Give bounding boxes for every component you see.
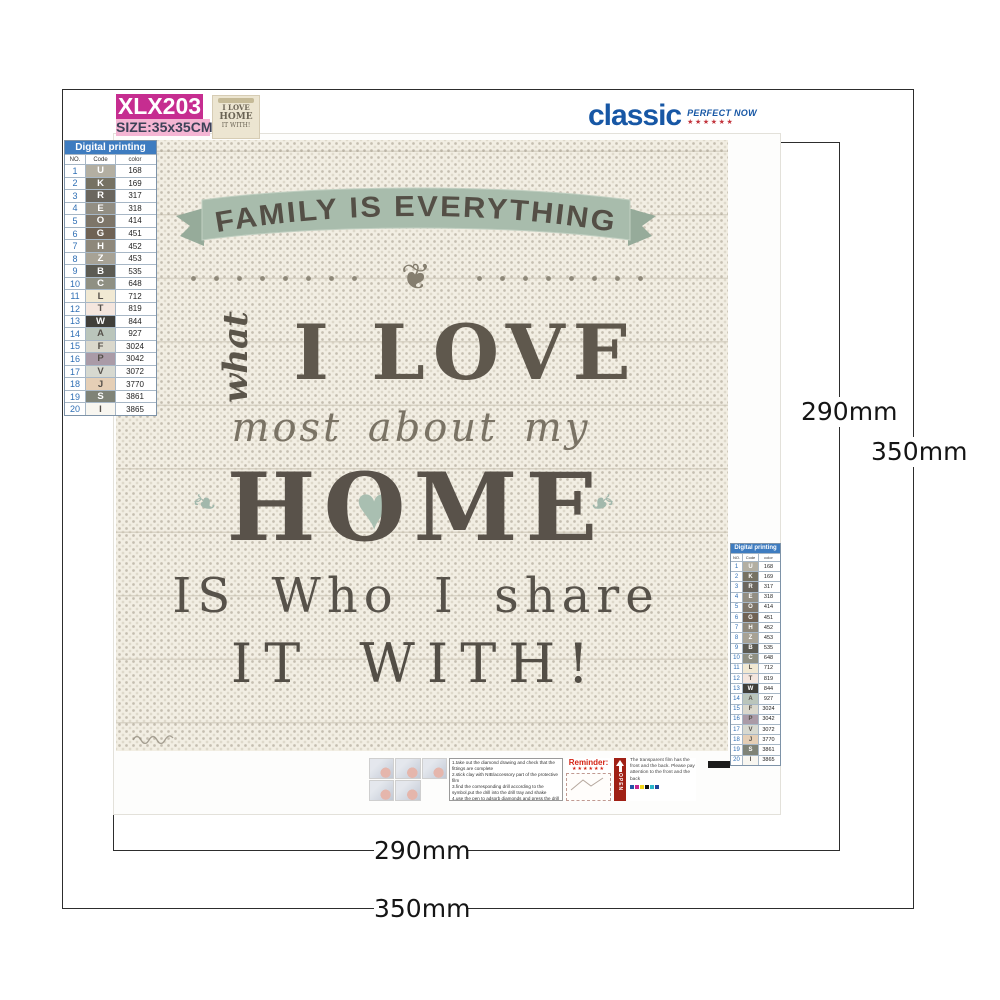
palette-color-number: 168 — [758, 562, 778, 571]
palette-row: 16P3042 — [731, 714, 780, 724]
palette-color-number: 3861 — [758, 745, 778, 754]
palette-color-number: 712 — [758, 664, 778, 673]
palette-no: 2 — [731, 572, 742, 581]
palette-no: 8 — [731, 633, 742, 642]
palette-row: 4E318 — [731, 592, 780, 602]
palette-color-number: 453 — [758, 633, 778, 642]
palette-no: 12 — [65, 303, 85, 315]
palette-code-swatch: Z — [742, 633, 758, 642]
palette-no: 11 — [731, 664, 742, 673]
palette-color-number: 535 — [115, 265, 154, 277]
palette-code-swatch: E — [85, 203, 115, 215]
palette-color-number: 927 — [115, 328, 154, 340]
palette-color-number: 3072 — [115, 366, 154, 378]
palette-code-swatch: Z — [85, 253, 115, 265]
palette-row: 4E318 — [65, 202, 156, 215]
palette-row: 10C648 — [65, 277, 156, 290]
palette-color-number: 3770 — [115, 378, 154, 390]
palette-code-swatch: F — [85, 341, 115, 353]
instruction-step: 4.use the pen to adsorb diamonds and pre… — [452, 796, 560, 801]
film-note-text: The transparent film has the front and t… — [630, 758, 695, 782]
palette-code-swatch: H — [742, 623, 758, 632]
palette-row: 13W844 — [731, 683, 780, 693]
cmyk-square — [655, 785, 659, 789]
palette-color-number: 414 — [115, 215, 154, 227]
palette-code-swatch: G — [742, 613, 758, 622]
palette-no: 16 — [731, 715, 742, 724]
palette-code-swatch: S — [85, 391, 115, 403]
step-image — [369, 758, 394, 779]
palette-color-number: 712 — [115, 290, 154, 302]
reminder-sketch — [566, 773, 611, 801]
thumbnail-line: IT WITH! — [213, 122, 259, 129]
palette-no: 1 — [65, 165, 85, 177]
palette-code-swatch: K — [742, 572, 758, 581]
dimension-label-design-width: 290mm — [374, 836, 466, 866]
palette-no: 3 — [731, 582, 742, 591]
brand-logo: classic PERFECT NOW ★★★★★★ — [588, 100, 757, 132]
palette-row: 3R317 — [65, 189, 156, 202]
palette-color-number: 168 — [115, 165, 154, 177]
palette-code-swatch: T — [742, 674, 758, 683]
palette-color-number: 3024 — [115, 341, 154, 353]
dimension-label-design-height: 290mm — [801, 397, 885, 427]
palette-color-number: 3865 — [758, 756, 778, 765]
palette-color-number: 452 — [758, 623, 778, 632]
palette-row: 5O414 — [65, 214, 156, 227]
palette-code-swatch: B — [85, 265, 115, 277]
palette-row: 6G451 — [65, 227, 156, 240]
palette-code-swatch: R — [85, 190, 115, 202]
palette-row: 1U168 — [65, 164, 156, 177]
palette-code-swatch: K — [85, 178, 115, 190]
palette-row: 17V3072 — [731, 724, 780, 734]
palette-no: 17 — [65, 366, 85, 378]
palette-column-headers: NO.Codecolor — [65, 154, 156, 164]
palette-code-swatch: I — [85, 403, 115, 415]
palette-row: 9B535 — [65, 264, 156, 277]
palette-column-header: color — [758, 554, 778, 561]
word-it-with: IT WITH! — [201, 632, 631, 698]
open-label: OPEN — [617, 773, 623, 791]
palette-title: Digital printing — [731, 544, 780, 553]
cmyk-square — [645, 785, 649, 789]
palette-row: 7H452 — [65, 239, 156, 252]
palette-column-header: NO. — [731, 554, 742, 561]
stitched-design-area: FAMILY IS EVERYTHING ❦ what I LOVE most … — [116, 140, 728, 751]
palette-code-swatch: J — [742, 735, 758, 744]
palette-row: 13W844 — [65, 315, 156, 328]
palette-code-swatch: V — [742, 725, 758, 734]
palette-row: 7H452 — [731, 622, 780, 632]
palette-color-number: 169 — [115, 178, 154, 190]
palette-color-number: 169 — [758, 572, 778, 581]
palette-no: 15 — [65, 341, 85, 353]
color-chart-right: Digital printingNO.Codecolor1U1682K1693R… — [730, 543, 781, 766]
product-image: FAMILY IS EVERYTHING ❦ what I LOVE most … — [0, 0, 1000, 1000]
palette-row: 10C648 — [731, 653, 780, 663]
instruction-step-images — [369, 758, 447, 801]
palette-row: 3R317 — [731, 581, 780, 591]
palette-row: 2K169 — [65, 177, 156, 190]
palette-no: 10 — [731, 654, 742, 663]
dimension-label-canvas-height: 350mm — [871, 437, 961, 467]
palette-row: 2K169 — [731, 571, 780, 581]
palette-no: 10 — [65, 278, 85, 290]
palette-no: 18 — [65, 378, 85, 390]
step-image — [369, 780, 394, 801]
palette-code-swatch: E — [742, 593, 758, 602]
instruction-strip: 1.take out the diamond drawing and check… — [369, 758, 696, 801]
product-size-label: SIZE:35x35CM — [116, 119, 210, 136]
palette-no: 20 — [65, 403, 85, 415]
brand-stars: ★★★★★★ — [687, 118, 757, 127]
canvas-photo: FAMILY IS EVERYTHING ❦ what I LOVE most … — [113, 133, 781, 815]
palette-row: 15F3024 — [65, 340, 156, 353]
instruction-text-block: 1.take out the diamond drawing and check… — [449, 758, 563, 801]
palette-row: 14A927 — [65, 327, 156, 340]
palette-color-number: 452 — [115, 240, 154, 252]
palette-row: 14A927 — [731, 693, 780, 703]
palette-color-number: 844 — [115, 316, 154, 328]
palette-no: 4 — [731, 593, 742, 602]
palette-row: 5O414 — [731, 602, 780, 612]
palette-code-swatch: F — [742, 705, 758, 714]
dimension-label-canvas-width: 350mm — [374, 894, 466, 924]
palette-row: 20I3865 — [731, 755, 780, 765]
instruction-step: 1.take out the diamond drawing and check… — [452, 760, 560, 772]
word-is-who-i-share: IS Who I share — [171, 568, 661, 624]
palette-column-header: color — [115, 155, 154, 164]
palette-column-header: Code — [85, 155, 115, 164]
palette-row: 18J3770 — [65, 377, 156, 390]
scroll-ornament: ❦ — [366, 254, 466, 300]
palette-code-swatch: L — [742, 664, 758, 673]
palette-no: 7 — [65, 240, 85, 252]
palette-code-swatch: W — [85, 316, 115, 328]
palette-code-swatch: R — [742, 582, 758, 591]
palette-color-number: 3770 — [758, 735, 778, 744]
palette-code-swatch: A — [85, 328, 115, 340]
film-note: The transparent film has the front and t… — [628, 758, 696, 801]
palette-code-swatch: P — [85, 353, 115, 365]
palette-color-number: 648 — [758, 654, 778, 663]
reminder-block: Reminder: ★★★★★★ — [565, 758, 612, 801]
reminder-stars: ★★★★★★ — [572, 767, 605, 772]
step-image — [395, 758, 420, 779]
brand-tagline: PERFECT NOW — [687, 108, 757, 118]
cmyk-color-marks — [630, 785, 696, 789]
dot-row-right — [468, 274, 652, 283]
palette-color-number: 317 — [758, 582, 778, 591]
print-registration-mark — [708, 761, 730, 768]
palette-color-number: 317 — [115, 190, 154, 202]
color-chart-left: Digital printingNO.Codecolor1U1682K1693R… — [64, 140, 157, 416]
word-what: what — [208, 307, 264, 407]
brand-name: classic — [588, 100, 681, 132]
palette-column-header: NO. — [65, 155, 85, 164]
palette-color-number: 414 — [758, 603, 778, 612]
palette-code-swatch: H — [85, 240, 115, 252]
palette-no: 16 — [65, 353, 85, 365]
palette-code-swatch: I — [742, 756, 758, 765]
palette-color-number: 453 — [115, 253, 154, 265]
palette-code-swatch: B — [742, 644, 758, 653]
design-thumbnail: I LOVE HOME IT WITH! — [212, 95, 260, 139]
palette-code-swatch: U — [85, 165, 115, 177]
cmyk-square — [635, 785, 639, 789]
palette-color-number: 819 — [115, 303, 154, 315]
palette-no: 13 — [65, 316, 85, 328]
dot-row-left — [182, 274, 366, 283]
palette-no: 7 — [731, 623, 742, 632]
palette-color-number: 927 — [758, 694, 778, 703]
palette-row: 17V3072 — [65, 365, 156, 378]
cmyk-square — [650, 785, 654, 789]
palette-row: 19S3861 — [65, 390, 156, 403]
cmyk-square — [630, 785, 634, 789]
palette-code-swatch: T — [85, 303, 115, 315]
palette-no: 5 — [65, 215, 85, 227]
palette-no: 2 — [65, 178, 85, 190]
palette-row: 12T819 — [65, 302, 156, 315]
cmyk-square — [640, 785, 644, 789]
palette-row: 8Z453 — [65, 252, 156, 265]
palette-no: 9 — [731, 644, 742, 653]
palette-row: 19S3861 — [731, 744, 780, 754]
palette-row: 20I3865 — [65, 402, 156, 415]
step-image — [422, 758, 447, 779]
product-code-label: XLX203 — [116, 94, 203, 119]
palette-code-swatch: W — [742, 684, 758, 693]
palette-color-number: 3861 — [115, 391, 154, 403]
palette-color-number: 3042 — [758, 715, 778, 724]
palette-code-swatch: J — [85, 378, 115, 390]
palette-color-number: 3042 — [115, 353, 154, 365]
open-tab: OPEN — [614, 758, 626, 801]
palette-no: 5 — [731, 603, 742, 612]
palette-row: 18J3770 — [731, 734, 780, 744]
palette-color-number: 3072 — [758, 725, 778, 734]
palette-row: 16P3042 — [65, 352, 156, 365]
palette-no: 19 — [731, 745, 742, 754]
palette-code-swatch: O — [85, 215, 115, 227]
palette-color-number: 451 — [115, 228, 154, 240]
word-i-love: I LOVE — [281, 305, 651, 400]
palette-color-number: 451 — [758, 613, 778, 622]
palette-no: 20 — [731, 756, 742, 765]
palette-code-swatch: L — [85, 290, 115, 302]
palette-no: 15 — [731, 705, 742, 714]
up-arrow-stem — [619, 766, 622, 772]
palette-row: 8Z453 — [731, 632, 780, 642]
palette-code-swatch: O — [742, 603, 758, 612]
palette-no: 18 — [731, 735, 742, 744]
palette-code-swatch: A — [742, 694, 758, 703]
palette-no: 8 — [65, 253, 85, 265]
palette-code-swatch: V — [85, 366, 115, 378]
thumbnail-line: HOME — [213, 112, 259, 122]
palette-no: 9 — [65, 265, 85, 277]
palette-no: 6 — [731, 613, 742, 622]
palette-no: 12 — [731, 674, 742, 683]
palette-code-swatch: C — [742, 654, 758, 663]
palette-row: 1U168 — [731, 561, 780, 571]
palette-color-number: 3865 — [115, 403, 154, 415]
palette-no: 11 — [65, 290, 85, 302]
palette-row: 15F3024 — [731, 704, 780, 714]
thumbnail-line: I LOVE — [213, 104, 259, 112]
palette-code-swatch: P — [742, 715, 758, 724]
palette-code-swatch: G — [85, 228, 115, 240]
palette-row: 11L712 — [731, 663, 780, 673]
palette-code-swatch: S — [742, 745, 758, 754]
palette-row: 11L712 — [65, 289, 156, 302]
instruction-step: 3.find the corresponding drill according… — [452, 784, 560, 796]
artist-signature — [130, 730, 182, 744]
palette-code-swatch: U — [742, 562, 758, 571]
palette-no: 13 — [731, 684, 742, 693]
palette-color-number: 318 — [115, 203, 154, 215]
instruction-step: 2.stick clay with NIB/accessory part of … — [452, 772, 560, 784]
palette-color-number: 819 — [758, 674, 778, 683]
palette-no: 4 — [65, 203, 85, 215]
word-most-about-my: most about my — [206, 404, 616, 452]
palette-color-number: 3024 — [758, 705, 778, 714]
palette-no: 17 — [731, 725, 742, 734]
palette-color-number: 318 — [758, 593, 778, 602]
palette-row: 6G451 — [731, 612, 780, 622]
step-image — [395, 780, 420, 801]
palette-no: 14 — [731, 694, 742, 703]
palette-column-header: Code — [742, 554, 758, 561]
palette-color-number: 844 — [758, 684, 778, 693]
palette-no: 1 — [731, 562, 742, 571]
palette-no: 6 — [65, 228, 85, 240]
palette-code-swatch: C — [85, 278, 115, 290]
palette-column-headers: NO.Codecolor — [731, 553, 780, 561]
palette-no: 19 — [65, 391, 85, 403]
palette-row: 12T819 — [731, 673, 780, 683]
palette-row: 9B535 — [731, 643, 780, 653]
palette-color-number: 648 — [115, 278, 154, 290]
palette-title: Digital printing — [65, 141, 156, 154]
palette-no: 14 — [65, 328, 85, 340]
word-home: HOME — [211, 452, 621, 567]
palette-color-number: 535 — [758, 644, 778, 653]
palette-no: 3 — [65, 190, 85, 202]
